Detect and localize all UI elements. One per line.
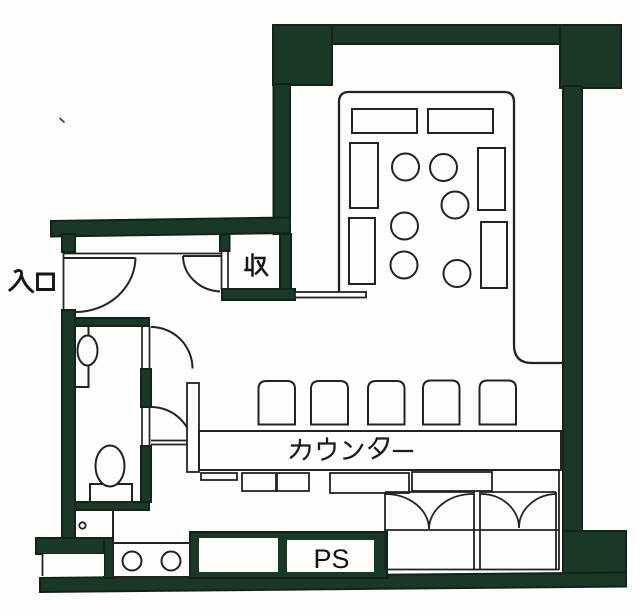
svg-text:PS: PS bbox=[313, 544, 349, 574]
